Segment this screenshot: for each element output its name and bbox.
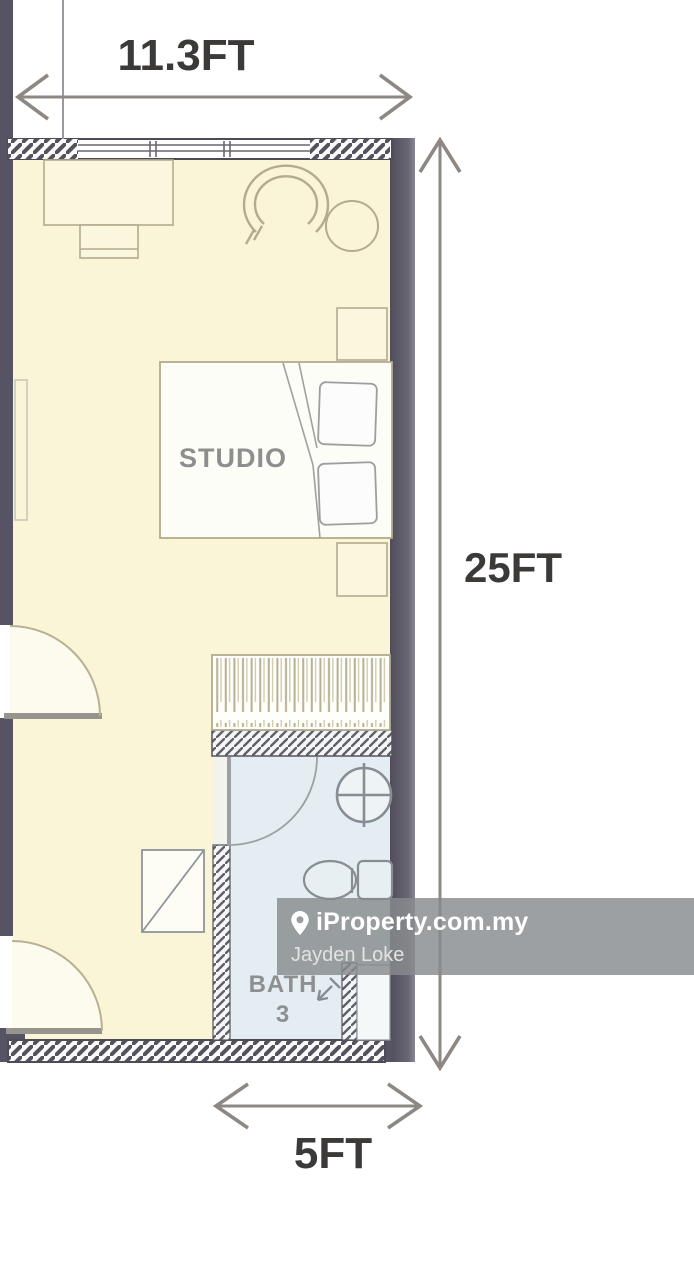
desk-chair: [80, 225, 138, 258]
bathroom-top-wall: [212, 730, 392, 756]
watermark-brand-row: iProperty.com.my: [291, 908, 694, 937]
floorplan-drawing: STUDIO: [0, 0, 694, 1280]
top-wall-hatch-left: [8, 139, 78, 159]
shower-floor: [357, 965, 390, 1040]
cabinet-with-diagonal: [142, 850, 204, 932]
bath-label-line1: BATH: [249, 971, 318, 998]
dimension-label-right: 25FT: [464, 544, 562, 591]
bed: STUDIO: [160, 362, 392, 538]
toilet: [304, 861, 392, 899]
hanging-clothes: [215, 658, 387, 727]
floorplan-page: STUDIO: [0, 0, 694, 1280]
location-pin-icon: [291, 911, 309, 935]
bottom-wall: [8, 1040, 385, 1062]
room-label: STUDIO: [179, 443, 287, 473]
nightstand-top: [337, 308, 387, 360]
top-wall-hatch-right: [310, 139, 390, 159]
bathroom-west-wall: [213, 845, 230, 1040]
left-wall-mid: [0, 718, 13, 936]
nightstand-bottom: [337, 543, 387, 596]
pillow: [318, 382, 377, 446]
dimension-bottom: [216, 1084, 420, 1128]
pillow: [318, 462, 377, 525]
watermark-brand: iProperty.com.my: [316, 908, 529, 937]
bath-label-line2: 3: [276, 1001, 290, 1028]
dimension-label-top: 11.3FT: [118, 31, 255, 80]
left-wall-upper: [0, 0, 13, 625]
side-table: [326, 201, 378, 251]
top-wall: [8, 139, 392, 159]
wardrobe: [212, 655, 390, 730]
watermark-banner: iProperty.com.my Jayden Loke: [277, 898, 694, 975]
watermark-agent: Jayden Loke: [291, 944, 694, 967]
dimension-label-bottom: 5FT: [294, 1129, 372, 1178]
